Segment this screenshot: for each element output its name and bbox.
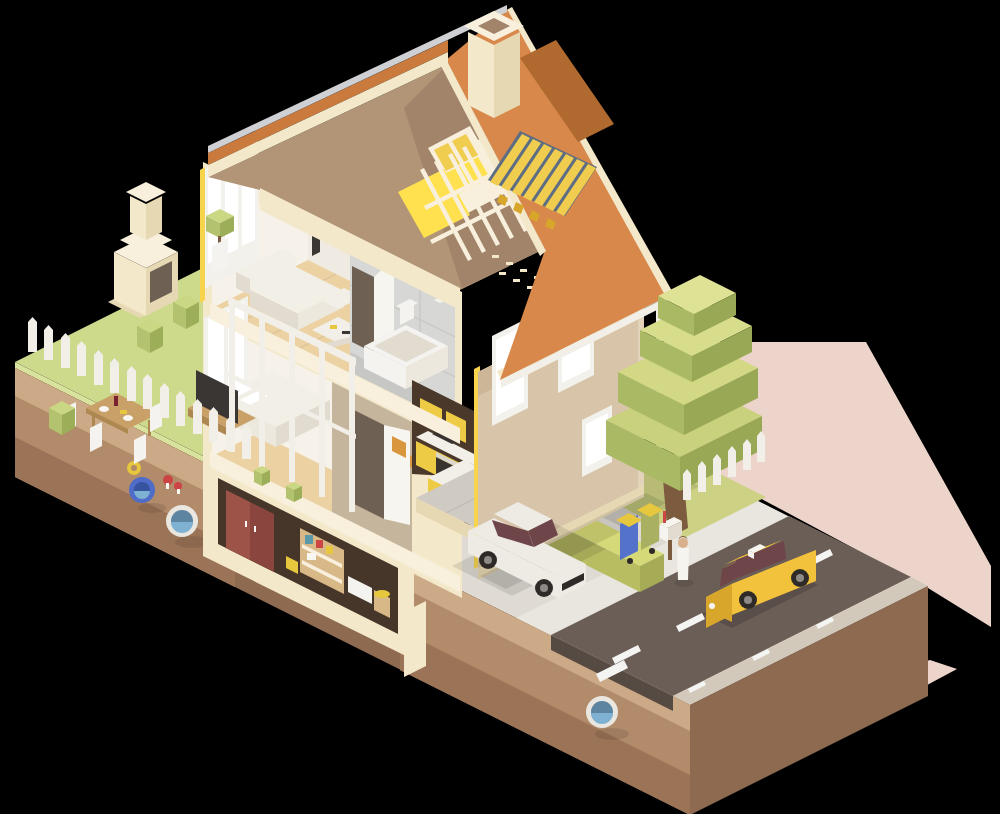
shelf-item-white xyxy=(307,553,316,560)
plate xyxy=(123,415,133,421)
bin-wheel xyxy=(649,548,655,554)
cellar-door-right xyxy=(250,502,274,572)
shelf-item-teal xyxy=(305,535,313,544)
chimney-se xyxy=(494,32,520,118)
scene-canvas xyxy=(0,0,1000,814)
taxi-wheel-hub xyxy=(796,574,804,582)
pergola-post xyxy=(349,362,355,512)
pipe-shadow xyxy=(595,728,629,740)
chimney-sw xyxy=(468,32,494,118)
shelf-item-yellow xyxy=(326,546,333,554)
bin-wheel xyxy=(627,558,633,564)
bbq-chimney-se xyxy=(146,196,162,240)
mailbox-post xyxy=(668,540,672,560)
bbq-chimney-sw xyxy=(130,196,146,240)
pergola-post xyxy=(319,347,325,497)
taxi-wheel-hub xyxy=(744,596,752,604)
mailbox-flag xyxy=(663,511,666,523)
bathroom-door-opening xyxy=(352,266,374,353)
bread xyxy=(120,410,127,414)
cellar-door-handle xyxy=(245,521,247,527)
yellow-ring-hole xyxy=(131,465,137,471)
pergola-post xyxy=(289,332,295,482)
mushroom-stem xyxy=(166,483,169,489)
shelf-item-red xyxy=(316,540,323,548)
barrel-lid xyxy=(374,590,390,598)
pipe-shadow xyxy=(138,503,166,513)
mushroom-stem xyxy=(177,489,180,494)
table-deco-yellow xyxy=(330,325,337,329)
cellar-door-handle xyxy=(254,526,256,532)
person-head xyxy=(678,538,688,548)
foundation-pier xyxy=(404,601,426,677)
door-opening xyxy=(350,408,384,519)
car-wheel-hub xyxy=(540,584,548,592)
isometric-house-cutaway-illustration xyxy=(0,0,1000,814)
person-body xyxy=(677,548,689,580)
red-mushroom xyxy=(174,482,182,490)
pergola-post xyxy=(259,317,265,467)
car-wheel-hub xyxy=(484,556,492,564)
wine-bottle xyxy=(114,396,118,406)
table-deco-dark xyxy=(342,331,350,334)
insulation-strip-left xyxy=(200,167,205,303)
plate xyxy=(99,406,109,412)
taxi-headlight xyxy=(709,603,715,609)
person-shadow xyxy=(674,579,694,587)
